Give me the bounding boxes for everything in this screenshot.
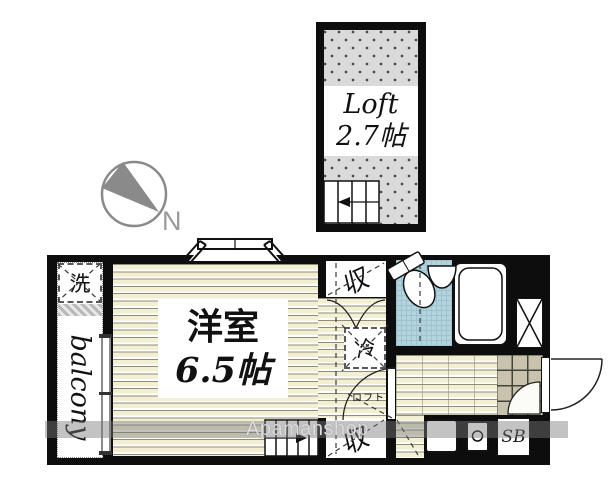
hallway-floor <box>396 355 497 415</box>
closet-top-box: 収 <box>326 261 386 297</box>
entrance-tile-floor <box>497 355 543 415</box>
balcony-hatch-band <box>58 304 102 316</box>
washer-box: 洗 <box>58 263 102 303</box>
entrance-door-leaf <box>541 357 550 413</box>
loft-ladder-note: ロフト <box>352 389 398 402</box>
pipe-shaft-icon <box>516 298 543 348</box>
room-name: 洋室 <box>187 305 259 349</box>
north-label: N <box>162 206 192 234</box>
watermark: Apamanshop <box>246 420 369 438</box>
loft-size: 2.7帖 <box>336 121 406 153</box>
compass-icon <box>102 162 166 226</box>
closet-top-label: 収 <box>340 255 373 302</box>
bathroom-floor <box>396 260 452 346</box>
washer-label: 洗 <box>70 268 91 298</box>
refrigerator-label: 冷 <box>352 331 379 365</box>
room-label-box: 洋室 6.5帖 <box>158 300 288 398</box>
bathtub-icon <box>453 262 508 346</box>
loft-name: Loft <box>343 89 398 121</box>
room-size: 6.5帖 <box>175 349 271 393</box>
floor-plan-page: Loft 2.7帖 洗 balcony 収 収 冷 洋室 6.5帖 SB <box>0 0 613 480</box>
entrance-door-swing-icon <box>551 359 602 410</box>
refrigerator-box: 冷 <box>344 327 386 369</box>
loft-label-box: Loft 2.7帖 <box>324 86 418 156</box>
